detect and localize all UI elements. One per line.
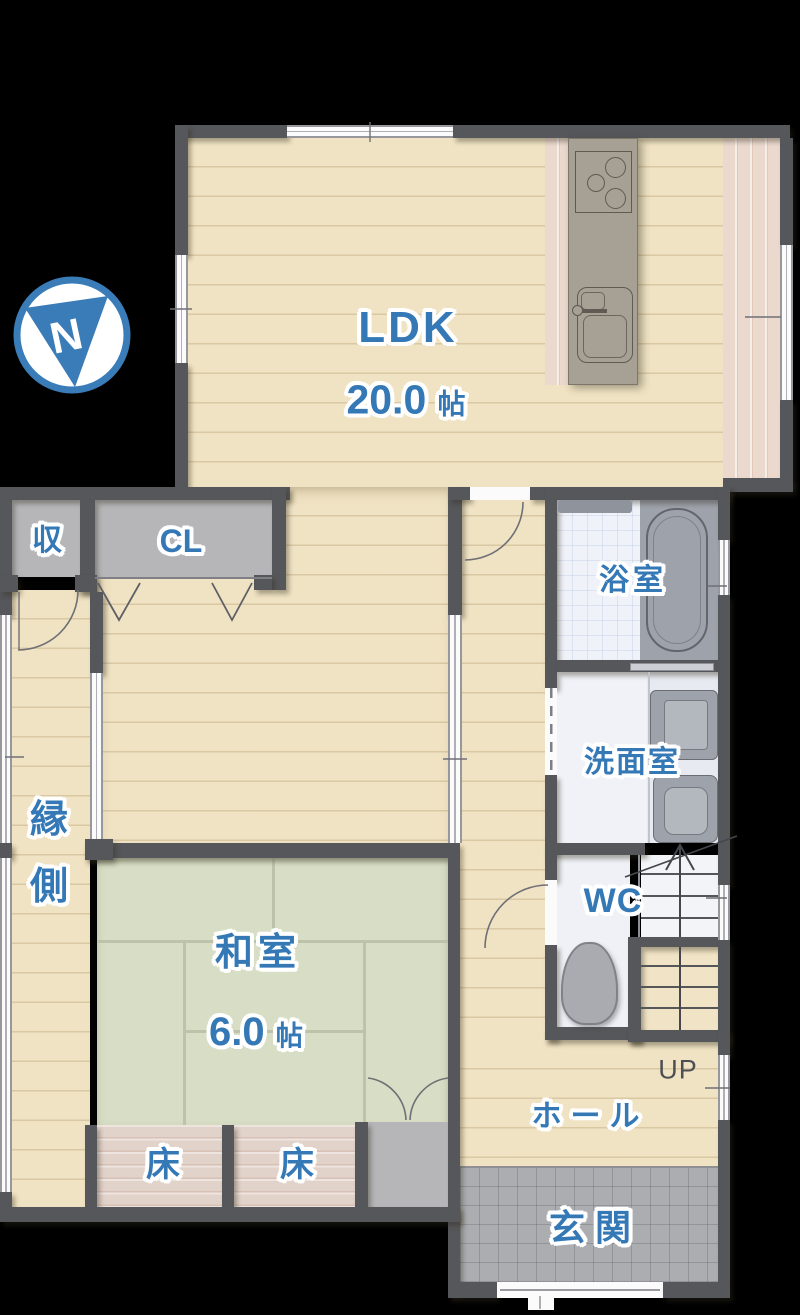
sink-faucet-knob (572, 305, 583, 316)
wall-segment (0, 1207, 460, 1222)
window (287, 125, 453, 138)
entrance-door-line (500, 1289, 660, 1291)
wall-segment (628, 937, 641, 1042)
wall-segment (85, 843, 460, 858)
wall-segment (448, 487, 462, 615)
floor-oshiire (368, 1122, 448, 1207)
room-label-ldk: LDK (358, 306, 457, 350)
room-size-value: 20.0 (346, 377, 426, 423)
tatami-grid-line (363, 940, 366, 1125)
window (718, 540, 730, 595)
room-label-genkan: 玄関 (549, 1210, 641, 1246)
window (175, 255, 188, 363)
wall-segment (628, 1030, 730, 1042)
room-label-engawa-2: 側 (30, 868, 68, 906)
wall-segment (175, 125, 287, 138)
sliding-door (90, 673, 103, 843)
wall-segment (718, 1120, 730, 1282)
wall-segment (448, 1282, 497, 1298)
bath-window-ledge (558, 500, 632, 513)
wall-segment (272, 487, 286, 590)
wall-segment (663, 1282, 730, 1298)
room-label-toko-1: 床 (146, 1148, 180, 1182)
wall-segment (718, 940, 730, 1055)
wall-segment (545, 843, 645, 855)
room-size-washitsu: 6.0 帖 (209, 1012, 303, 1052)
wall-segment (545, 672, 557, 688)
floor-corridor (460, 487, 545, 1045)
wall-segment (448, 858, 460, 1295)
room-label-bath: 浴室 (599, 566, 667, 596)
floor-wood-deck (723, 138, 780, 487)
toilet-icon (561, 942, 618, 1025)
tatami-grid-line (272, 855, 275, 942)
sink-bowl (583, 315, 627, 358)
wall-segment (175, 363, 188, 487)
stove-burner (605, 157, 626, 178)
wall-segment (175, 125, 188, 255)
wall-segment (0, 1192, 12, 1207)
wall-segment (453, 125, 790, 138)
stair-center-line (679, 845, 681, 937)
bath-folding-door (630, 663, 714, 671)
stairs-up-label: UP (658, 1055, 698, 1086)
wc-door-opening (545, 880, 557, 945)
wall-segment (90, 592, 103, 673)
room-size-unit: 帖 (276, 1020, 303, 1051)
window (0, 615, 12, 843)
compass-north-icon: N (10, 273, 134, 397)
wall-segment (545, 855, 557, 880)
stove-burner (587, 174, 605, 192)
window (780, 245, 793, 400)
wall-segment (718, 595, 730, 885)
vanity-bowl (664, 787, 708, 835)
room-label-storage: 収 (32, 526, 62, 556)
closet-track-line (95, 577, 272, 579)
wall-post (85, 839, 113, 860)
sliding-window (448, 615, 462, 843)
tatami-grid-line (183, 940, 186, 1125)
wall-segment (545, 487, 730, 500)
window (0, 858, 12, 1192)
room-label-hall: ホール (532, 1102, 649, 1132)
wall-segment (355, 1122, 368, 1207)
stair-center-line (679, 947, 681, 1030)
wall-segment (0, 575, 18, 592)
stove-burner (605, 188, 626, 209)
wall-segment (448, 487, 470, 500)
wall-segment (718, 487, 730, 540)
wall-segment (222, 1125, 234, 1207)
room-label-toko-2: 床 (280, 1148, 314, 1182)
room-size-unit: 帖 (438, 389, 466, 420)
wall-segment (780, 138, 793, 245)
sink-detail (581, 292, 605, 310)
wall-segment (0, 487, 290, 500)
wall-segment (75, 575, 97, 592)
window (718, 885, 730, 940)
floor-plan: N LDK 20.0 帖 浴室 洗面室 WC 和室 6.0 帖 床 床 収 CL… (0, 0, 800, 1315)
wall-segment (780, 400, 793, 487)
room-label-washitsu: 和室 (215, 934, 301, 972)
wall-segment (530, 487, 545, 500)
wall-segment (641, 937, 718, 947)
wall-segment (85, 1125, 97, 1207)
floor-kitchen-strip (545, 138, 568, 385)
door-opening (470, 487, 530, 500)
room-label-engawa-1: 縁 (30, 801, 68, 839)
compass-letter: N (46, 309, 87, 364)
room-size-ldk: 20.0 帖 (346, 380, 465, 421)
floor-ldk (188, 138, 780, 487)
room-label-wc: WC (584, 884, 643, 918)
washing-machine-door (664, 700, 708, 750)
wall-segment (0, 600, 12, 615)
wall-segment (545, 945, 557, 1040)
entrance-step (528, 1298, 554, 1310)
room-label-washroom: 洗面室 (584, 748, 680, 778)
wall-segment (0, 843, 12, 858)
window (718, 1055, 730, 1120)
room-size-value: 6.0 (209, 1010, 265, 1054)
open-passage-dashed (545, 688, 557, 775)
wall-segment (545, 1027, 640, 1040)
wall-segment (723, 478, 793, 492)
room-label-cl: CL (160, 525, 203, 557)
genkan-step-edge (460, 1166, 718, 1168)
wall-segment (545, 500, 557, 672)
